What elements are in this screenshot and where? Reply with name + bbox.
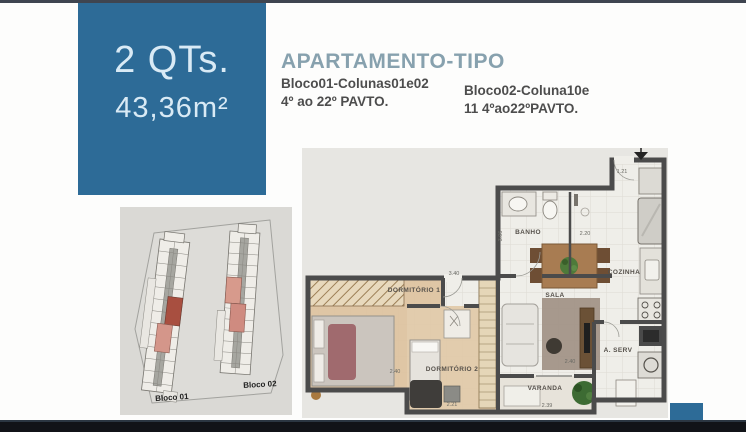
kitchen-sink xyxy=(645,260,659,280)
block1-line1: Bloco01-Colunas01e02 xyxy=(281,75,429,93)
dim-varanda-w: 2.39 xyxy=(542,403,553,409)
unit-type-badge: 2 QTs. 43,36m² xyxy=(78,3,266,195)
block2-line1: Bloco02-Coluna10e xyxy=(464,82,589,100)
bloco1-highlighted-unit-dark xyxy=(165,296,183,326)
bloco2-highlighted-unit-upper xyxy=(225,277,242,304)
tv xyxy=(584,323,590,353)
bloco2-label: Bloco 02 xyxy=(243,379,277,390)
sofa xyxy=(502,304,538,366)
room-label-banho: BANHO xyxy=(515,229,541,236)
shower-head xyxy=(574,194,578,206)
dim-dorm1-top: 3.40 xyxy=(449,271,460,277)
dim-dorm1-w: 2.40 xyxy=(390,369,401,375)
washer xyxy=(638,352,664,378)
dorm2-chair xyxy=(444,386,460,402)
room-label-cozinha: COZINHA xyxy=(608,269,640,276)
dim-dorm2-w: 2.21 xyxy=(447,402,458,408)
apartment-floor-plan: BANHO COZINHA SALA DORMITÓRIO 1 DORMITÓR… xyxy=(302,148,668,418)
brochure-page: 2 QTs. 43,36m² APARTAMENTO-TIPO Bloco01-… xyxy=(0,0,746,432)
side-table xyxy=(546,338,562,354)
stove xyxy=(638,298,664,322)
dim-sala-w: 2.40 xyxy=(565,359,576,365)
dim-banho-v: 3.06 xyxy=(498,231,504,242)
page-title: APARTAMENTO-TIPO xyxy=(281,50,505,74)
banho-sink xyxy=(509,197,527,211)
dorm1-throw-blanket xyxy=(328,324,356,380)
room-label-varanda: VARANDA xyxy=(528,385,563,392)
room-label-dorm1: DORMITÓRIO 1 xyxy=(388,285,440,294)
block2-info: Bloco02-Coluna10e 11 4ºao22ºPAVTO. xyxy=(464,82,589,117)
kitchen-cabinet xyxy=(639,168,663,194)
bloco2-highlighted-unit-lower xyxy=(229,303,246,332)
block1-line2: 4º ao 22º PAVTO. xyxy=(281,93,429,111)
block2-line2: 11 4ºao22ºPAVTO. xyxy=(464,100,589,118)
banho-toilet xyxy=(543,201,557,219)
dorm2-desk xyxy=(410,380,442,408)
block1-info: Bloco01-Colunas01e02 4º ao 22º PAVTO. xyxy=(281,75,429,110)
room-label-sala: SALA xyxy=(545,292,564,299)
dim-shower: 2.20 xyxy=(580,231,591,237)
room-label-dorm2: DORMITÓRIO 2 xyxy=(426,364,478,373)
site-key-plan: Bloco 01 Bloco 02 xyxy=(120,207,292,415)
room-label-aserv: A. SERV xyxy=(604,347,633,354)
unit-area-label: 43,36m² xyxy=(78,92,266,125)
dim-entry: 1.21 xyxy=(617,169,628,175)
bloco1-highlighted-unit-light xyxy=(154,323,172,353)
bottom-accent-square xyxy=(670,403,703,420)
bottom-bar xyxy=(0,420,746,432)
dorm2-dresser xyxy=(444,310,470,338)
unit-type-label: 2 QTs. xyxy=(78,39,266,82)
